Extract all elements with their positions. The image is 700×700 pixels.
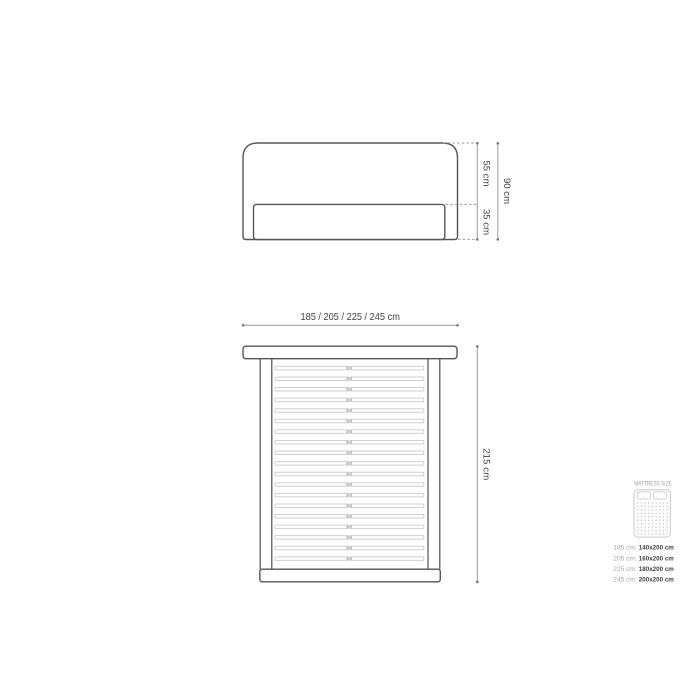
- svg-text:185 / 205 / 225 / 245 cm: 185 / 205 / 225 / 245 cm: [300, 312, 400, 323]
- svg-text:35 cm: 35 cm: [480, 209, 491, 235]
- svg-text:205 cm:160x200 cm: 205 cm:160x200 cm: [613, 555, 674, 562]
- svg-text:MATTRESS SIZE: MATTRESS SIZE: [634, 480, 672, 487]
- svg-text:185 cm:140x200 cm: 185 cm:140x200 cm: [613, 545, 674, 552]
- svg-text:225 cm:180x200 cm: 225 cm:180x200 cm: [613, 566, 674, 573]
- svg-text:245 cm:200x200 cm: 245 cm:200x200 cm: [613, 577, 674, 584]
- svg-text:55 cm: 55 cm: [480, 160, 491, 186]
- svg-text:90 cm: 90 cm: [501, 178, 512, 204]
- svg-text:215 cm: 215 cm: [481, 448, 492, 480]
